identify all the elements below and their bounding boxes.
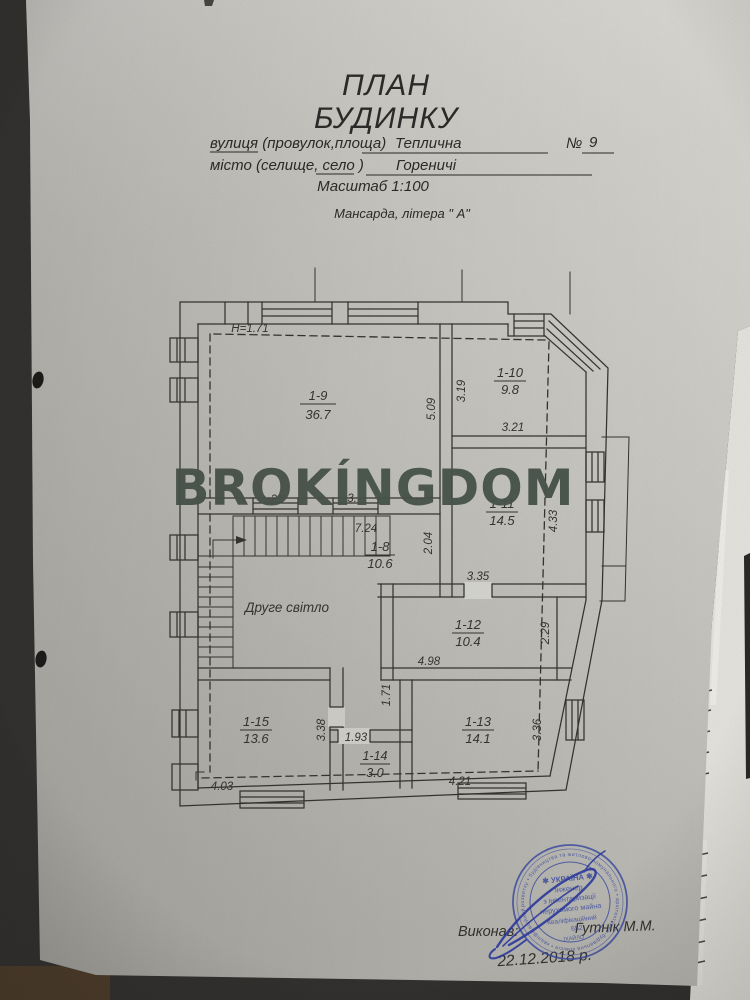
photo-vignette bbox=[0, 0, 750, 1000]
photographed-document: ПЛАН БУДИНКУ вулиця (провулок,площа) Теп… bbox=[0, 0, 750, 1000]
document-canvas: ПЛАН БУДИНКУ вулиця (провулок,площа) Теп… bbox=[0, 0, 750, 1000]
